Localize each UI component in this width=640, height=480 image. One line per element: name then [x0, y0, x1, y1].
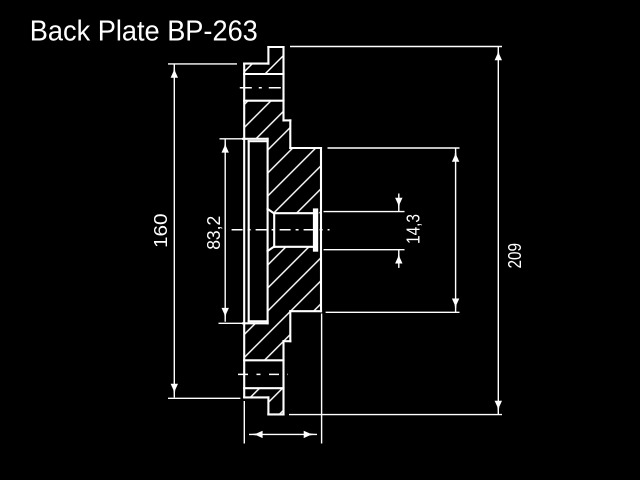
svg-text:83,2: 83,2 [204, 216, 224, 250]
svg-text:14,3: 14,3 [403, 214, 423, 244]
svg-text:Back Plate BP-263: Back Plate BP-263 [30, 14, 258, 46]
svg-text:160: 160 [151, 214, 171, 249]
svg-text:209: 209 [505, 243, 525, 269]
